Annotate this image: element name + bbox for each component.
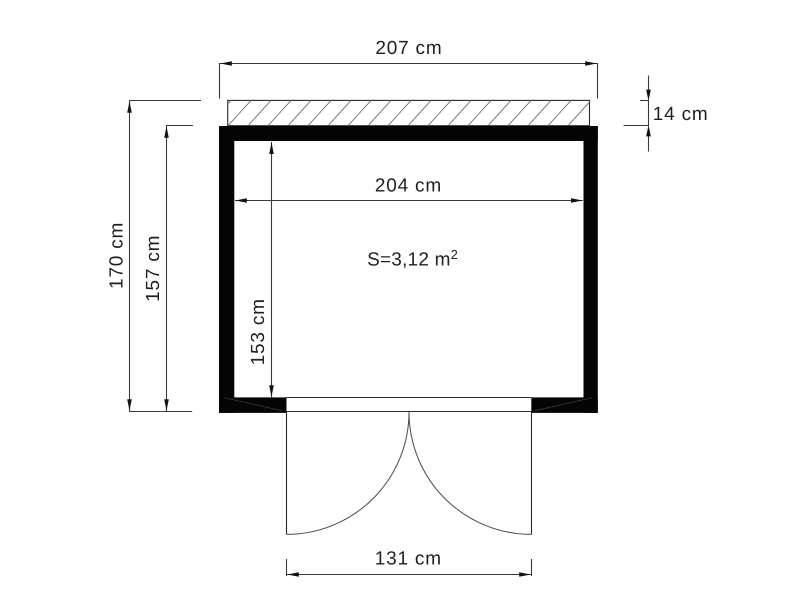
svg-text:14 cm: 14 cm (653, 104, 709, 125)
svg-text:153 cm: 153 cm (248, 298, 269, 365)
svg-text:131 cm: 131 cm (375, 549, 442, 570)
svg-text:170 cm: 170 cm (106, 222, 127, 289)
svg-text:157 cm: 157 cm (143, 235, 164, 302)
svg-text:204 cm: 204 cm (375, 175, 442, 196)
svg-text:S=3,12 m2: S=3,12 m2 (367, 247, 458, 271)
svg-text:207 cm: 207 cm (375, 38, 442, 59)
